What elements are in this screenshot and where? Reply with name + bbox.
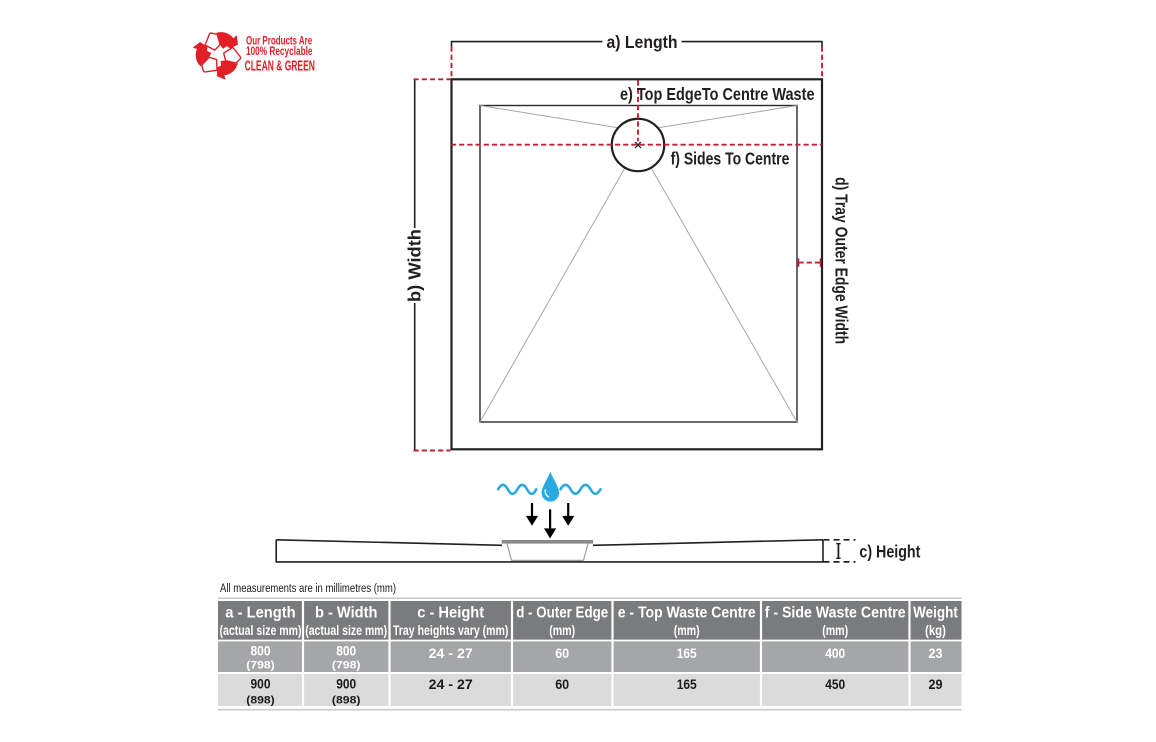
svg-text:450: 450 — [825, 676, 845, 692]
svg-text:e - Top Waste Centre: e - Top Waste Centre — [618, 604, 756, 621]
svg-text:a) Length: a) Length — [607, 32, 678, 52]
svg-text:b) Width: b) Width — [405, 229, 425, 302]
svg-text:(898): (898) — [332, 694, 361, 706]
svg-text:a - Length: a - Length — [225, 604, 295, 621]
svg-text:29: 29 — [929, 676, 943, 692]
svg-text:60: 60 — [555, 645, 569, 661]
svg-text:60: 60 — [555, 676, 569, 692]
svg-text:f - Side Waste Centre: f - Side Waste Centre — [765, 604, 906, 621]
svg-text:(798): (798) — [332, 659, 361, 671]
svg-text:f) Sides To Centre: f) Sides To Centre — [671, 149, 790, 169]
svg-text:165: 165 — [677, 676, 697, 692]
svg-text:c - Height: c - Height — [417, 604, 484, 621]
svg-text:(mm): (mm) — [822, 623, 848, 638]
svg-text:(actual size mm): (actual size mm) — [305, 623, 387, 638]
svg-text:Weight: Weight — [913, 604, 958, 621]
svg-text:(mm): (mm) — [549, 623, 575, 638]
svg-text:400: 400 — [825, 645, 845, 661]
svg-text:(actual size mm): (actual size mm) — [220, 623, 302, 638]
svg-text:23: 23 — [929, 645, 943, 661]
svg-text:165: 165 — [677, 645, 697, 661]
svg-text:24 - 27: 24 - 27 — [429, 676, 473, 692]
svg-text:All measurements are in millim: All measurements are in millimetres (mm) — [220, 581, 396, 595]
svg-text:b - Width: b - Width — [315, 604, 378, 621]
svg-text:(kg): (kg) — [925, 623, 946, 638]
svg-text:CLEAN & GREEN: CLEAN & GREEN — [245, 59, 315, 75]
svg-text:800: 800 — [336, 643, 356, 659]
svg-text:800: 800 — [251, 643, 271, 659]
svg-text:d - Outer Edge: d - Outer Edge — [516, 604, 608, 621]
svg-text:100% Recyclable: 100% Recyclable — [246, 46, 313, 58]
svg-text:Tray heights vary (mm): Tray heights vary (mm) — [393, 623, 509, 638]
svg-text:900: 900 — [251, 676, 271, 692]
svg-text:(898): (898) — [246, 694, 275, 706]
svg-text:d) Tray Outer Edge Width: d) Tray Outer Edge Width — [832, 177, 852, 344]
svg-text:c) Height: c) Height — [859, 541, 920, 561]
svg-text:(798): (798) — [246, 659, 275, 671]
svg-text:(mm): (mm) — [674, 623, 700, 638]
svg-text:900: 900 — [336, 676, 356, 692]
svg-text:e) Top EdgeTo Centre Waste: e) Top EdgeTo Centre Waste — [620, 84, 815, 104]
svg-text:24 - 27: 24 - 27 — [429, 645, 473, 661]
